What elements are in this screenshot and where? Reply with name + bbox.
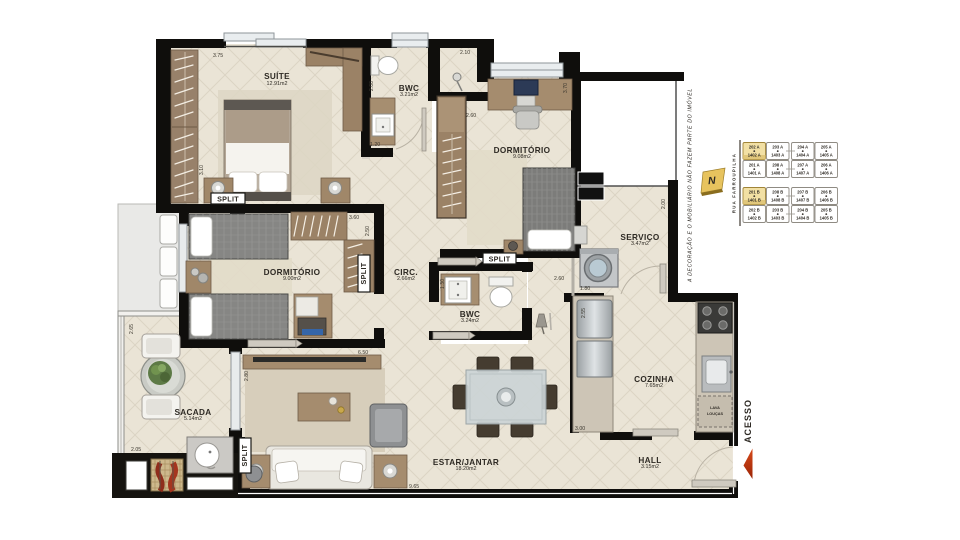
svg-text:ACESSO: ACESSO [743,399,753,443]
svg-text:207 A: 207 A [797,163,808,168]
svg-text:207 B: 207 B [797,190,808,195]
svg-text:1.30: 1.30 [440,279,446,289]
svg-text:1403 B: 1403 B [771,216,784,221]
svg-text:204 B: 204 B [797,208,808,213]
svg-text:203 B: 203 B [772,208,783,213]
svg-text:2.10: 2.10 [460,50,470,56]
svg-text:2.66m2: 2.66m2 [397,276,415,282]
svg-text:1402 A: 1402 A [748,153,761,158]
svg-text:2.80: 2.80 [244,371,250,381]
svg-text:3.21m2: 3.21m2 [400,92,418,98]
svg-text:2.00: 2.00 [661,199,667,209]
svg-text:1.80: 1.80 [580,286,590,292]
svg-text:1406 A: 1406 A [820,171,833,176]
svg-text:201 B: 201 B [749,190,760,195]
svg-text:7.65m2: 7.65m2 [645,383,663,389]
svg-text:2.50: 2.50 [365,226,371,236]
svg-text:206 B: 206 B [821,190,832,195]
svg-text:6.50: 6.50 [358,350,368,356]
svg-text:1405 A: 1405 A [820,153,833,158]
svg-text:3.10: 3.10 [199,165,205,175]
svg-text:SPLIT: SPLIT [217,195,239,204]
svg-text:N: N [708,175,717,188]
svg-text:LOUÇAS: LOUÇAS [707,412,723,416]
svg-text:201 A: 201 A [749,163,760,168]
svg-text:2.55: 2.55 [581,308,587,318]
svg-text:A DECORAÇÃO E O MOBILIÁRIO NÃO: A DECORAÇÃO E O MOBILIÁRIO NÃO FAZEM PAR… [687,88,694,283]
svg-text:2.00: 2.00 [369,81,375,91]
svg-text:1408 B: 1408 B [771,198,784,203]
svg-text:RUA FARROUPILHA: RUA FARROUPILHA [732,153,737,213]
svg-text:205 A: 205 A [821,145,832,150]
svg-text:18.20m2: 18.20m2 [456,466,477,472]
svg-text:1402 B: 1402 B [748,216,761,221]
svg-text:1406 B: 1406 B [820,198,833,203]
svg-text:9.00m2: 9.00m2 [283,276,301,282]
svg-text:202 A: 202 A [749,145,760,150]
svg-text:1401 A: 1401 A [748,171,761,176]
svg-text:3.15m2: 3.15m2 [641,464,659,470]
svg-text:2.65: 2.65 [129,324,135,334]
svg-text:206 A: 206 A [821,163,832,168]
svg-text:203 A: 203 A [772,145,783,150]
svg-text:2.60: 2.60 [554,276,564,282]
svg-text:202 B: 202 B [749,208,760,213]
svg-text:SPLIT: SPLIT [489,255,511,264]
svg-text:208 B: 208 B [772,190,783,195]
svg-text:2.05: 2.05 [131,447,141,453]
svg-text:5.14m2: 5.14m2 [184,416,202,422]
svg-text:9.08m2: 9.08m2 [513,154,531,160]
svg-text:3.60: 3.60 [349,215,359,221]
svg-text:205 B: 205 B [821,208,832,213]
svg-text:1408 A: 1408 A [771,171,784,176]
svg-text:1404 A: 1404 A [796,153,809,158]
svg-text:2.60: 2.60 [466,113,476,119]
svg-text:1401 B: 1401 B [748,198,761,203]
svg-text:3.75: 3.75 [213,53,223,59]
svg-text:1404 B: 1404 B [796,216,809,221]
svg-text:1407 B: 1407 B [796,198,809,203]
svg-text:SPLIT: SPLIT [240,444,249,466]
svg-text:1403 A: 1403 A [771,153,784,158]
svg-text:1405 B: 1405 B [820,216,833,221]
svg-text:1407 A: 1407 A [796,171,809,176]
svg-text:204 A: 204 A [797,145,808,150]
svg-text:SPLIT: SPLIT [359,262,368,284]
svg-text:SUÍTE: SUÍTE [264,71,290,81]
svg-text:3.70: 3.70 [563,83,569,93]
svg-text:208 A: 208 A [772,163,783,168]
svg-text:12.91m2: 12.91m2 [267,81,288,87]
svg-text:3.47m2: 3.47m2 [631,241,649,247]
svg-text:LAVA: LAVA [710,406,720,410]
svg-text:3.24m2: 3.24m2 [461,318,479,324]
svg-text:9.65: 9.65 [409,484,419,490]
svg-text:3.00: 3.00 [575,426,585,432]
svg-text:1.20: 1.20 [370,142,380,148]
